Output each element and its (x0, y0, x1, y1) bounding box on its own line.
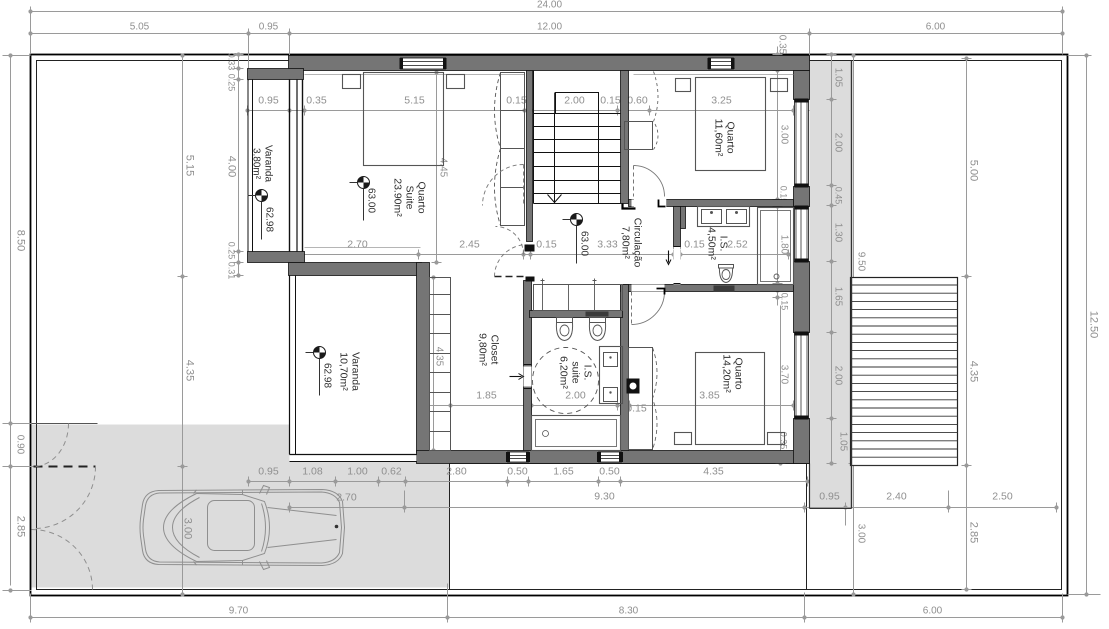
svg-text:9.70: 9.70 (229, 606, 249, 617)
svg-text:8.30: 8.30 (619, 606, 639, 617)
svg-text:4.00: 4.00 (226, 156, 238, 177)
svg-text:3.33: 3.33 (597, 239, 618, 251)
svg-text:2.50: 2.50 (992, 491, 1013, 503)
svg-text:10,70m²: 10,70m² (338, 352, 350, 391)
svg-text:14,20m²: 14,20m² (721, 354, 733, 393)
svg-text:11,60m²: 11,60m² (713, 119, 725, 157)
svg-text:3.00: 3.00 (779, 125, 790, 145)
svg-text:1.05: 1.05 (833, 68, 844, 88)
svg-text:0.31: 0.31 (227, 262, 237, 280)
svg-text:0.35: 0.35 (779, 432, 789, 450)
svg-text:0.95: 0.95 (258, 95, 279, 107)
svg-text:2.85: 2.85 (968, 522, 980, 543)
svg-text:0.25: 0.25 (227, 242, 237, 260)
svg-text:23.90m²: 23.90m² (392, 178, 404, 217)
svg-text:9.50: 9.50 (856, 252, 867, 272)
svg-text:1.30: 1.30 (833, 223, 844, 243)
svg-text:Closet: Closet (489, 335, 501, 365)
svg-text:Quarto: Quarto (733, 357, 745, 389)
svg-text:2.00: 2.00 (564, 95, 585, 107)
svg-text:3.00: 3.00 (182, 518, 194, 539)
svg-text:0.95: 0.95 (258, 466, 279, 478)
svg-text:3.70: 3.70 (779, 365, 790, 385)
svg-text:0.15: 0.15 (684, 239, 705, 251)
svg-text:5.05: 5.05 (130, 22, 150, 33)
svg-text:0.95: 0.95 (259, 22, 279, 33)
svg-text:63.00: 63.00 (366, 188, 377, 213)
svg-text:7,80m²: 7,80m² (620, 226, 632, 259)
svg-text:1.05: 1.05 (838, 432, 849, 452)
svg-text:0.15: 0.15 (626, 403, 647, 415)
svg-text:2.00: 2.00 (565, 390, 586, 402)
svg-text:0.33: 0.33 (227, 53, 237, 71)
svg-text:6,20m²: 6,20m² (558, 356, 570, 389)
svg-text:1.85: 1.85 (476, 390, 497, 402)
svg-text:2.45: 2.45 (459, 239, 480, 251)
svg-text:1.00: 1.00 (347, 466, 368, 478)
svg-text:Quarto: Quarto (725, 121, 737, 153)
svg-text:12.00: 12.00 (537, 22, 562, 33)
svg-text:3.25: 3.25 (711, 95, 732, 107)
svg-text:5.15: 5.15 (404, 95, 425, 107)
svg-text:3.80m²: 3.80m² (251, 148, 262, 180)
svg-text:3.00: 3.00 (856, 524, 867, 544)
svg-text:5.15: 5.15 (184, 155, 196, 176)
svg-text:I.S.: I.S. (718, 236, 730, 252)
svg-text:I.S.: I.S. (582, 365, 594, 381)
svg-text:1.80: 1.80 (779, 235, 790, 255)
svg-text:4.35: 4.35 (968, 361, 980, 382)
svg-text:1.65: 1.65 (833, 287, 844, 307)
svg-text:0.50: 0.50 (507, 466, 528, 478)
svg-text:9.30: 9.30 (594, 491, 615, 503)
svg-text:0.25: 0.25 (227, 74, 237, 92)
svg-text:suite: suite (570, 361, 582, 383)
svg-text:Circulação: Circulação (632, 218, 644, 268)
svg-text:0.35: 0.35 (306, 95, 327, 107)
svg-text:9,80m²: 9,80m² (477, 333, 489, 366)
svg-text:2.85: 2.85 (15, 516, 27, 537)
svg-text:63.00: 63.00 (579, 231, 590, 256)
svg-text:4.35: 4.35 (703, 466, 724, 478)
svg-text:2.00: 2.00 (833, 366, 844, 386)
svg-text:2.80: 2.80 (446, 466, 467, 478)
svg-text:1.65: 1.65 (553, 466, 574, 478)
svg-text:0.45: 0.45 (834, 187, 844, 205)
svg-text:6.00: 6.00 (926, 22, 946, 33)
svg-text:2.40: 2.40 (886, 491, 907, 503)
svg-text:6.00: 6.00 (923, 606, 943, 617)
svg-text:Varanda: Varanda (263, 145, 274, 183)
svg-text:0.15: 0.15 (536, 239, 557, 251)
svg-text:2.00: 2.00 (833, 133, 844, 153)
svg-text:4.35: 4.35 (434, 347, 445, 367)
svg-text:2.70: 2.70 (347, 239, 368, 251)
svg-text:0.15: 0.15 (600, 95, 621, 107)
svg-text:24.00: 24.00 (537, 0, 562, 11)
svg-text:0.35: 0.35 (777, 35, 788, 55)
svg-text:0.60: 0.60 (627, 95, 648, 107)
svg-text:5.00: 5.00 (968, 160, 980, 181)
svg-text:1.08: 1.08 (302, 466, 323, 478)
svg-text:Quarto: Quarto (416, 181, 428, 213)
svg-text:0.62: 0.62 (381, 466, 402, 478)
svg-text:0.90: 0.90 (15, 435, 26, 455)
svg-text:4.35: 4.35 (184, 360, 196, 381)
svg-text:4,50m²: 4,50m² (706, 227, 718, 260)
svg-text:62.98: 62.98 (322, 363, 333, 388)
svg-text:Suite: Suite (404, 186, 416, 210)
svg-text:0.95: 0.95 (819, 491, 840, 503)
svg-text:12.50: 12.50 (1088, 311, 1100, 339)
svg-text:8.50: 8.50 (15, 230, 27, 251)
svg-text:62.98: 62.98 (264, 207, 275, 232)
svg-text:0.50: 0.50 (599, 466, 620, 478)
svg-text:Varanda: Varanda (350, 352, 362, 391)
svg-text:3.85: 3.85 (699, 390, 720, 402)
svg-text:0.15: 0.15 (506, 95, 527, 107)
